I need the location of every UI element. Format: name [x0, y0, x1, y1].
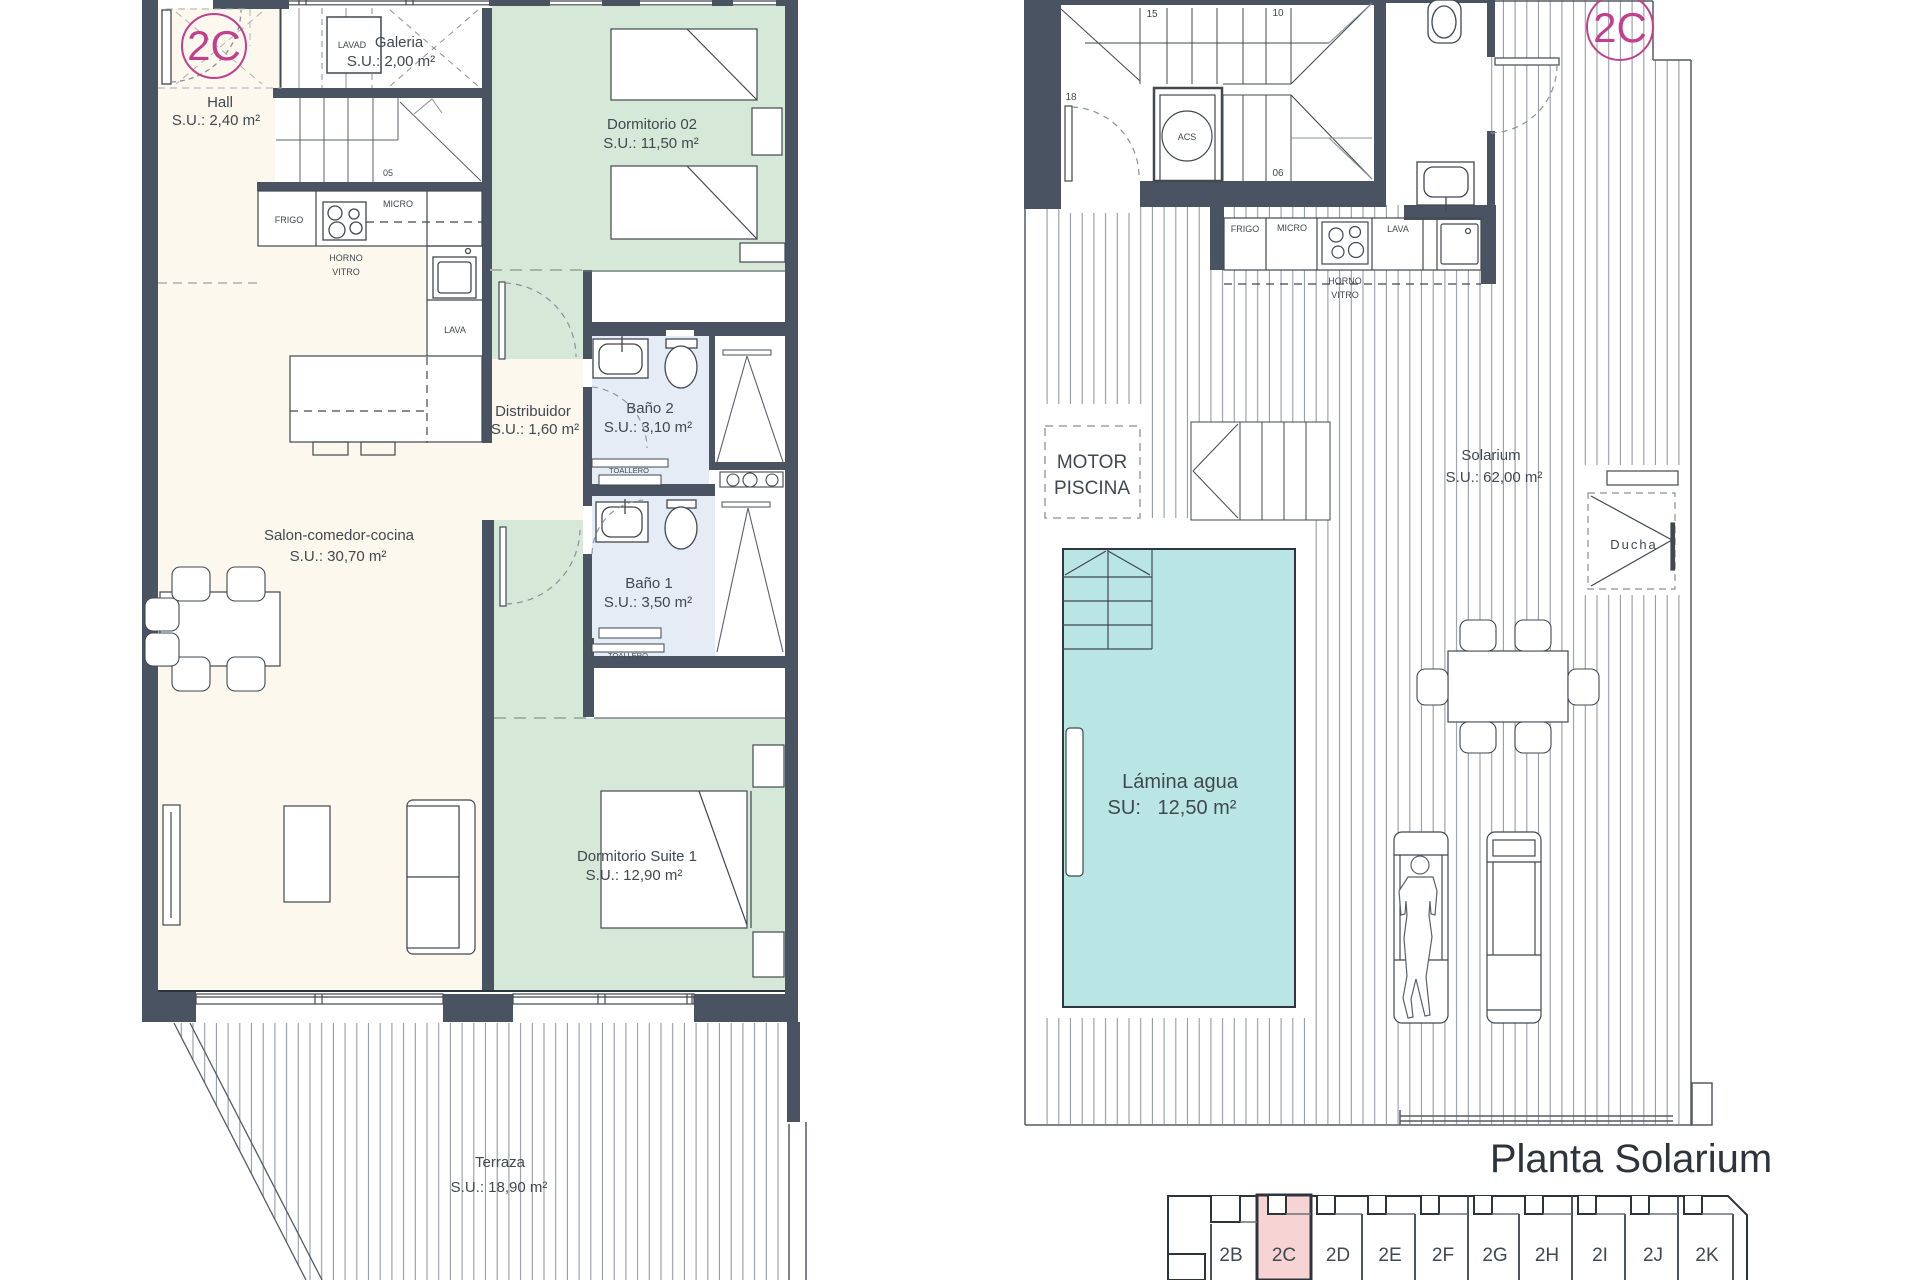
svg-text:2J: 2J — [1643, 1245, 1663, 1266]
svg-text:2K: 2K — [1695, 1245, 1719, 1266]
svg-text:S.U.: 2,00 m²: S.U.: 2,00 m² — [347, 53, 435, 70]
svg-text:2H: 2H — [1535, 1245, 1559, 1266]
svg-text:FRIGO: FRIGO — [275, 215, 304, 225]
svg-text:MICRO: MICRO — [1277, 223, 1307, 233]
svg-text:18: 18 — [1065, 92, 1077, 103]
svg-text:10: 10 — [1272, 8, 1284, 19]
svg-text:S.U.: 1,60 m²: S.U.: 1,60 m² — [491, 421, 579, 438]
svg-text:MOTOR: MOTOR — [1057, 452, 1127, 473]
svg-text:Dormitorio Suite 1: Dormitorio Suite 1 — [577, 848, 697, 865]
svg-text:Distribuidor: Distribuidor — [495, 403, 571, 420]
svg-text:LAVA: LAVA — [1387, 224, 1409, 234]
svg-text:05: 05 — [383, 168, 393, 178]
svg-text:HORNO: HORNO — [329, 253, 363, 263]
svg-text:LAVA: LAVA — [444, 325, 466, 335]
svg-text:2I: 2I — [1592, 1245, 1608, 1266]
svg-text:2B: 2B — [1219, 1245, 1242, 1266]
svg-text:FRIGO: FRIGO — [1231, 224, 1260, 234]
svg-text:S.U.: 2,40 m²: S.U.: 2,40 m² — [172, 112, 260, 129]
svg-text:2C: 2C — [1272, 1245, 1296, 1266]
svg-text:S.U.: 30,70 m²: S.U.: 30,70 m² — [290, 548, 387, 565]
svg-text:2D: 2D — [1326, 1245, 1350, 1266]
svg-text:2F: 2F — [1432, 1245, 1454, 1266]
svg-text:Hall: Hall — [207, 94, 233, 111]
svg-text:VITRO: VITRO — [1331, 290, 1359, 300]
svg-text:Baño 2: Baño 2 — [626, 400, 674, 417]
svg-text:2C: 2C — [1593, 4, 1647, 51]
svg-text:HORNO: HORNO — [1328, 276, 1362, 286]
svg-text:MICRO: MICRO — [383, 199, 413, 209]
svg-text:06: 06 — [1272, 168, 1284, 179]
svg-text:Solarium: Solarium — [1461, 447, 1520, 464]
svg-text:Lámina agua: Lámina agua — [1122, 771, 1239, 793]
svg-text:2E: 2E — [1378, 1245, 1401, 1266]
svg-text:S.U.: 11,50 m²: S.U.: 11,50 m² — [603, 135, 699, 152]
svg-text:S.U.: 3,50 m²: S.U.: 3,50 m² — [604, 594, 692, 611]
svg-text:2G: 2G — [1482, 1245, 1507, 1266]
svg-text:S.U.: 62,00 m²: S.U.: 62,00 m² — [1446, 469, 1543, 486]
svg-text:Planta Solarium: Planta Solarium — [1490, 1137, 1772, 1181]
svg-text:TOALLERO: TOALLERO — [608, 651, 648, 660]
svg-text:VITRO: VITRO — [332, 267, 360, 277]
svg-text:S.U.: 18,90 m²: S.U.: 18,90 m² — [451, 1179, 548, 1196]
svg-text:Galeria: Galeria — [375, 34, 424, 51]
svg-text:ACS: ACS — [1178, 132, 1197, 142]
svg-text:SU: 12,50 m²: SU: 12,50 m² — [1108, 797, 1237, 819]
svg-text:Baño 1: Baño 1 — [625, 575, 673, 592]
svg-text:PISCINA: PISCINA — [1054, 478, 1130, 499]
svg-text:Salon-comedor-cocina: Salon-comedor-cocina — [264, 527, 415, 544]
svg-text:Dormitorio 02: Dormitorio 02 — [607, 116, 697, 133]
svg-text:15: 15 — [1146, 9, 1158, 20]
svg-text:Terraza: Terraza — [475, 1154, 526, 1171]
svg-text:S.U.: 3,10 m²: S.U.: 3,10 m² — [604, 419, 692, 436]
svg-text:S.U.: 12,90 m²: S.U.: 12,90 m² — [586, 867, 683, 884]
svg-text:LAVAD: LAVAD — [338, 40, 367, 50]
svg-text:TOALLERO: TOALLERO — [609, 466, 649, 475]
svg-text:2C: 2C — [187, 22, 241, 69]
svg-text:Ducha: Ducha — [1610, 537, 1658, 552]
